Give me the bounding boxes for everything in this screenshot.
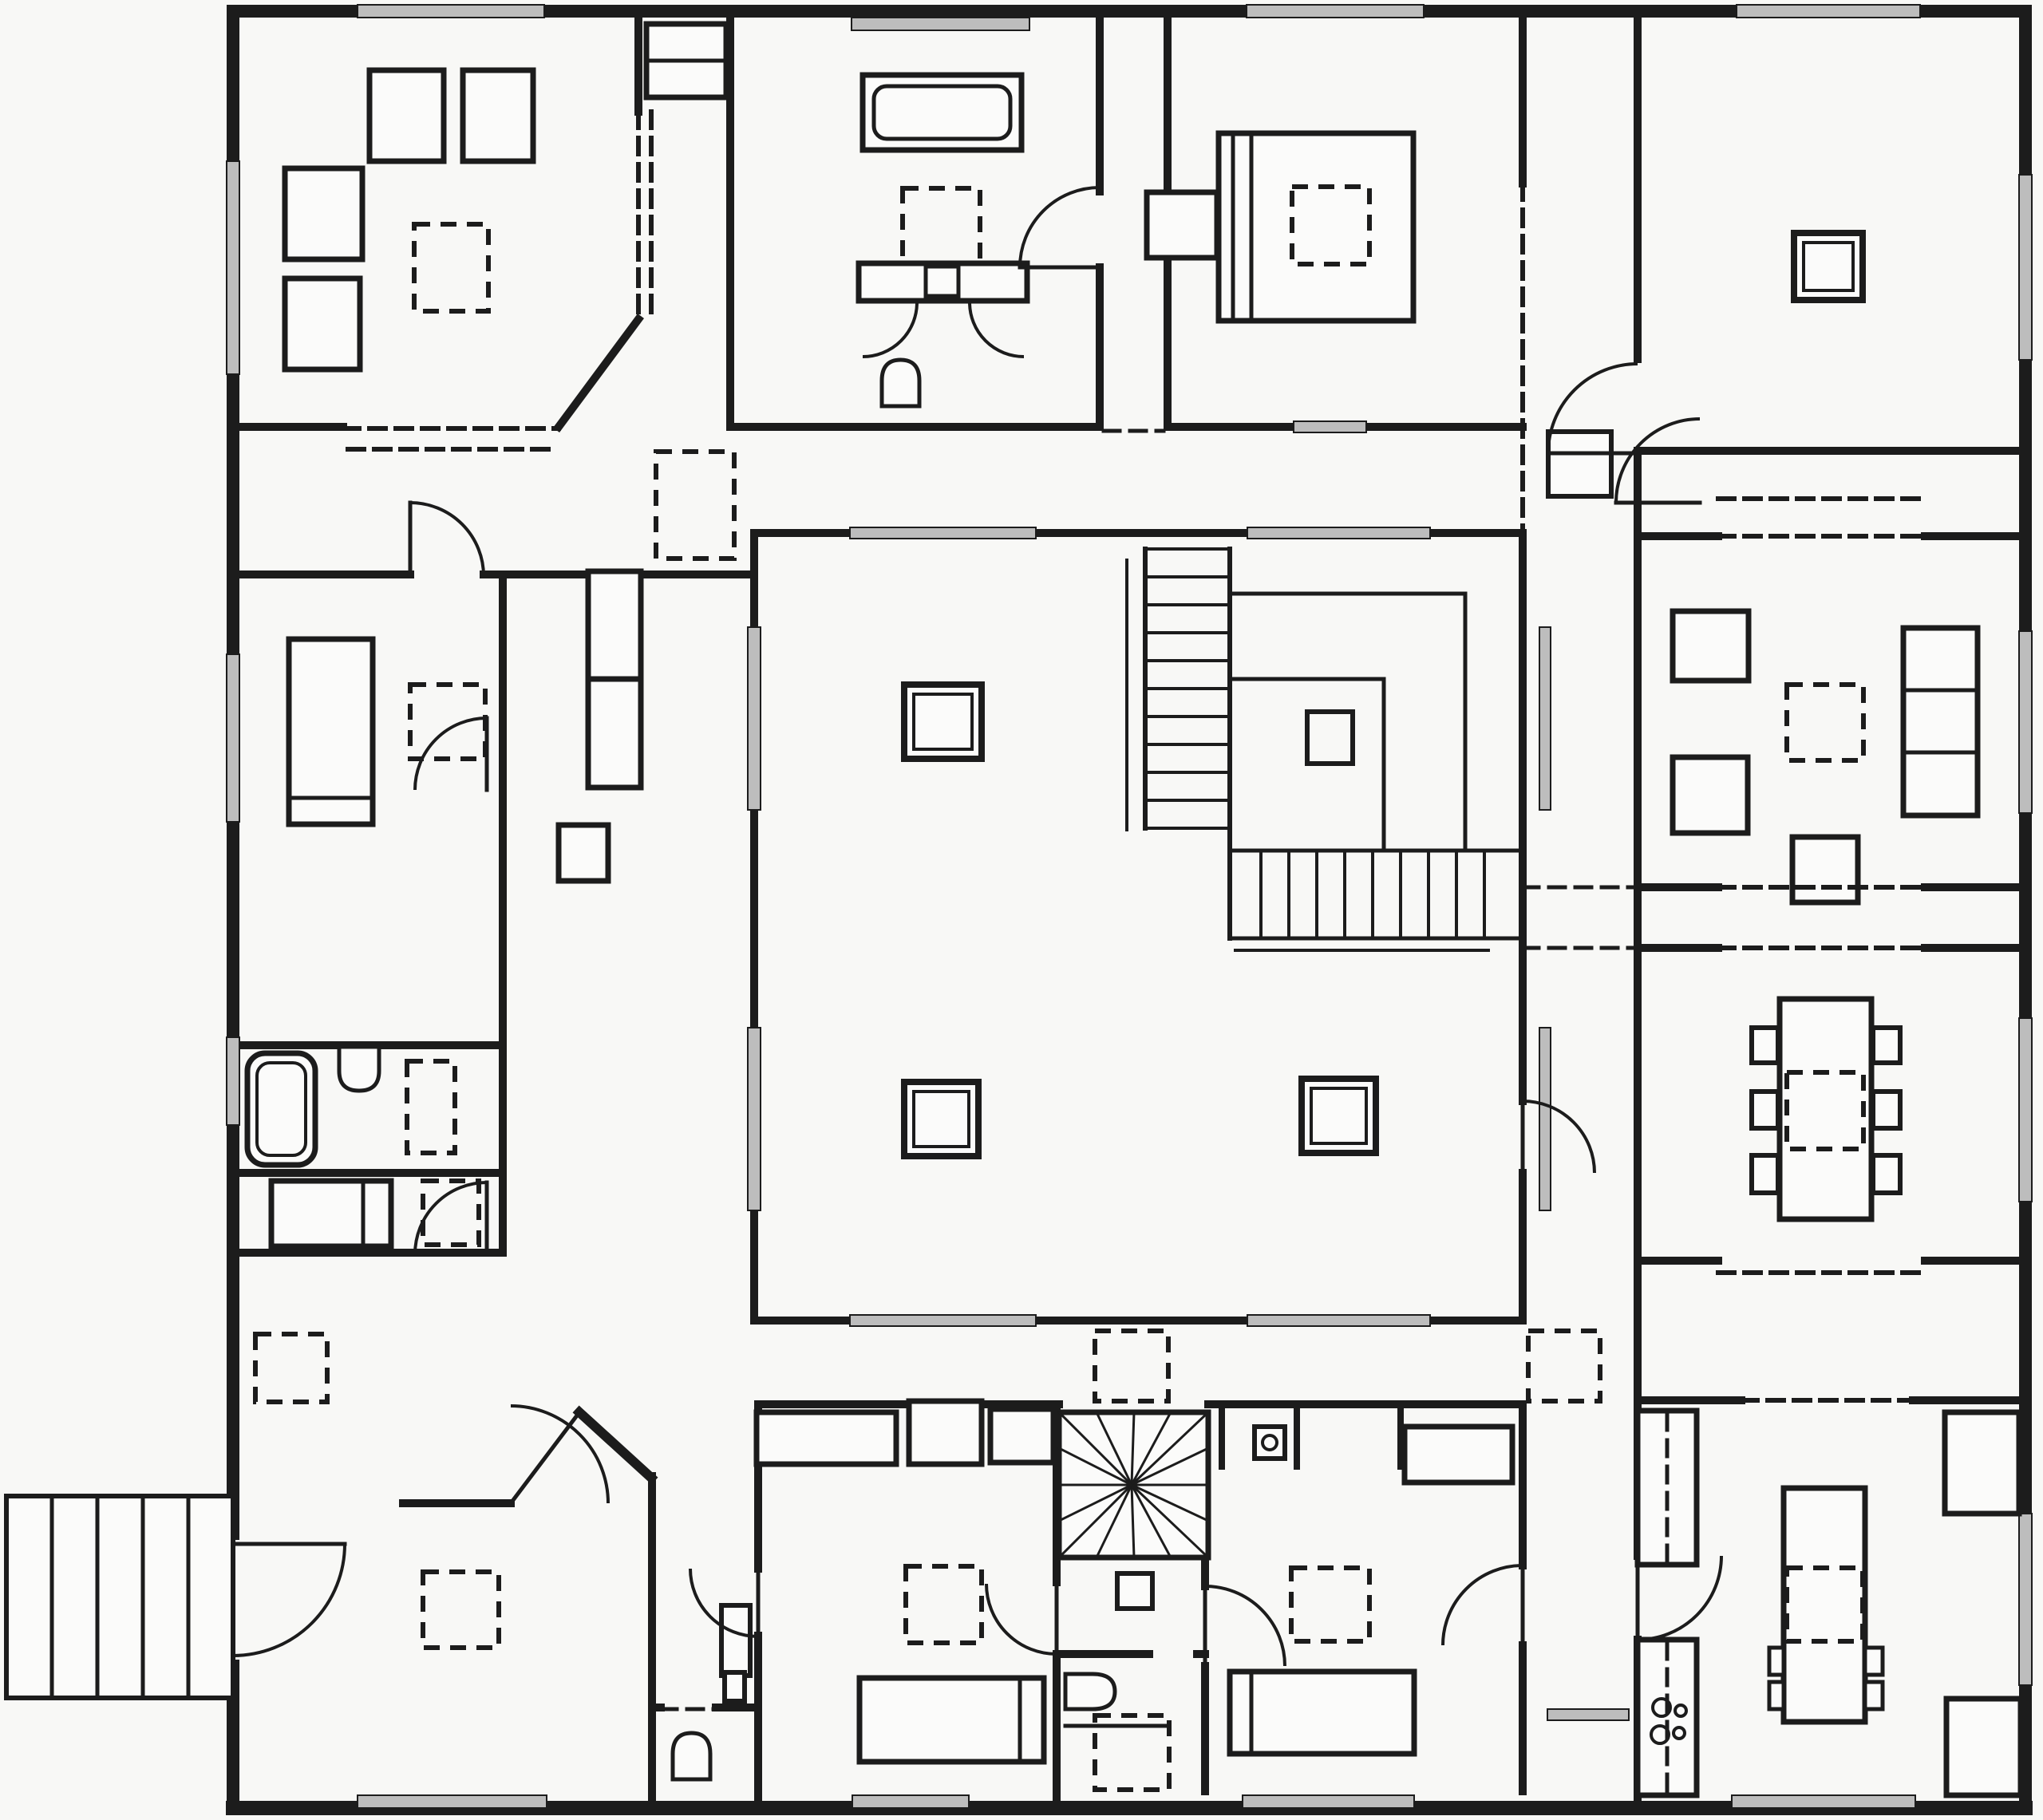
door-swing-arc (1616, 419, 1700, 503)
window (2019, 175, 2032, 360)
furniture (1638, 1411, 1697, 1565)
furniture (859, 1678, 1044, 1762)
furniture (914, 694, 972, 749)
window (748, 1028, 761, 1210)
door-swing-arc (1020, 188, 1100, 267)
dashed-rug (906, 1566, 982, 1643)
door-swing-arc (1205, 1586, 1285, 1666)
window (227, 1037, 239, 1125)
floor-plan-svg (0, 0, 2043, 1820)
toilet (339, 1047, 379, 1091)
dashed-rug (255, 1334, 327, 1402)
furniture (1255, 1427, 1285, 1459)
furniture (1548, 432, 1611, 496)
wall (559, 319, 638, 427)
door-swing-arc (415, 718, 487, 790)
furniture (285, 278, 360, 369)
furniture (1769, 1648, 1784, 1675)
dashed-rug (1528, 1331, 1600, 1401)
furniture (1945, 1412, 2019, 1514)
window (2019, 1514, 2032, 1685)
window (1737, 5, 1920, 18)
dashed-rug (423, 1572, 499, 1648)
dashed-rug (903, 188, 980, 263)
furniture (721, 1605, 750, 1676)
window (1243, 1795, 1414, 1808)
furniture (1873, 1092, 1900, 1128)
window (227, 161, 239, 374)
toilet (1065, 1674, 1115, 1709)
furniture (271, 1181, 391, 1246)
furniture (1673, 757, 1748, 833)
furniture (1769, 1682, 1784, 1709)
window (2019, 1018, 2032, 1202)
furniture (1752, 1092, 1778, 1128)
furniture (1673, 611, 1749, 681)
window (1247, 1315, 1430, 1326)
furniture (1784, 1488, 1865, 1722)
window (1732, 1795, 1915, 1808)
furniture (1230, 1672, 1414, 1754)
furniture (757, 1412, 896, 1464)
window (850, 527, 1036, 539)
window (358, 5, 544, 18)
toilet (673, 1733, 710, 1779)
furniture (909, 1401, 982, 1464)
dashed-rug (1095, 1331, 1168, 1401)
furniture (990, 1409, 1053, 1463)
dashed-rug (656, 452, 734, 559)
door-swing-arc (970, 302, 1024, 357)
furniture (874, 86, 1010, 139)
window (1294, 421, 1366, 432)
furniture (1873, 1155, 1900, 1193)
furniture (6, 1496, 233, 1698)
dashed-rug (1787, 685, 1863, 760)
window (1539, 627, 1551, 810)
window (358, 1795, 547, 1808)
furniture (257, 1063, 306, 1155)
door-swing-arc (410, 503, 484, 576)
dashed-rug (407, 1061, 455, 1153)
furniture (588, 679, 641, 788)
furniture (1405, 1427, 1512, 1482)
furniture (588, 571, 641, 679)
window (850, 1315, 1036, 1326)
furniture (1752, 1028, 1778, 1063)
furniture (1311, 1088, 1366, 1143)
furniture (725, 1672, 745, 1701)
window (227, 654, 239, 822)
furniture (559, 825, 608, 881)
window (1247, 5, 1424, 18)
furniture (926, 266, 958, 296)
furniture (1865, 1682, 1883, 1709)
window (1547, 1709, 1629, 1720)
window (1247, 527, 1430, 539)
furniture (1219, 133, 1413, 321)
furniture (1873, 1028, 1900, 1063)
furniture (1903, 628, 1978, 815)
dashed-rug (410, 685, 485, 759)
dashed-rug (1291, 1568, 1369, 1641)
door-swing-arc (1443, 1565, 1523, 1645)
window (2019, 631, 2032, 813)
furniture (369, 70, 444, 161)
door-swing-arc (863, 302, 917, 357)
furniture (1946, 1699, 2021, 1795)
furniture (1752, 1155, 1778, 1193)
window (852, 18, 1029, 30)
furniture (1638, 1640, 1697, 1795)
furniture (1117, 1573, 1152, 1609)
window (748, 627, 761, 810)
furniture (285, 168, 362, 259)
toilet (882, 360, 919, 406)
furniture (1147, 192, 1217, 258)
door-swing-arc (1523, 1101, 1594, 1173)
dashed-rug (414, 224, 488, 311)
furniture (463, 70, 533, 161)
window (852, 1795, 969, 1808)
door-swing-arc (986, 1584, 1057, 1654)
door-leaf (511, 1412, 579, 1503)
furniture (1792, 837, 1858, 902)
door-swing-arc (1638, 1556, 1721, 1640)
door-swing-arc (233, 1544, 345, 1656)
window (1539, 1028, 1551, 1210)
floor-plan (0, 0, 2043, 1820)
furniture (1804, 243, 1853, 290)
furniture (1865, 1648, 1883, 1675)
furniture (914, 1092, 969, 1147)
furniture (1780, 999, 1871, 1219)
